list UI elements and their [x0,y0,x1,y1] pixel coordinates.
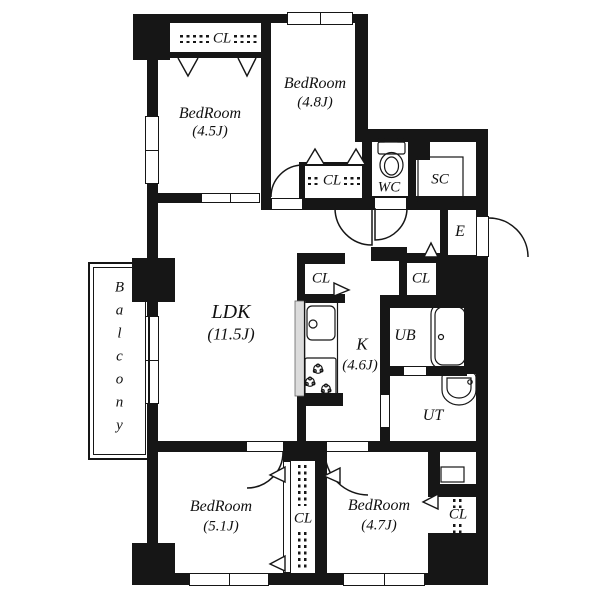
label-closet-bottom-center: CL [294,512,312,527]
label-bedroom-top-left-size: (4.5J) [192,125,227,140]
folding-door-mark [306,149,324,164]
stove-icon [305,358,336,398]
label-entrance: E [455,224,465,240]
kitchen-counter-icon [295,301,338,397]
entrance-step-mark [424,243,438,257]
door-swing-mark [423,494,438,509]
door-arc-entrance [489,218,528,257]
label-ldk-name: LDK [212,302,251,322]
label-ldk-size: (11.5J) [207,326,254,343]
bathtub-icon [431,303,469,369]
label-closet-bedroom48: CL [323,174,341,189]
label-kitchen-size: (4.6J) [342,359,377,374]
washer-pan-icon [441,467,464,482]
door-arc-bedroom48 [271,165,303,197]
label-bedroom-bottom-left-name: BedRoom [190,499,252,515]
toilet-icon [378,139,405,178]
door-arc-hall-ldk [335,208,372,245]
label-bedroom-top-left-name: BedRoom [179,106,241,122]
label-unit-bath: UB [394,328,415,344]
label-bedroom-top-mid-name: BedRoom [284,76,346,92]
washbasin-icon [442,373,476,405]
label-wc: WC [378,181,401,196]
label-bedroom-top-mid-size: (4.8J) [297,96,332,111]
door-swing-mark [270,556,285,571]
label-bedroom-bottom-right-size: (4.7J) [361,519,396,534]
floor-plan: CL BedRoom (4.5J) BedRoom (4.8J) CL WC S… [0,0,600,600]
folding-door-mark [178,58,198,76]
label-balcony: Balcony [111,280,128,441]
label-closet-bottom-right: CL [449,508,467,523]
label-bedroom-bottom-right-name: BedRoom [348,498,410,514]
label-kitchen-name: K [356,336,367,353]
label-shoe-closet: SC [431,173,449,188]
label-closet-top: CL [213,32,231,47]
door-swing-mark [270,467,285,482]
label-utility: UT [423,408,443,424]
folding-door-mark [238,58,256,76]
door-arc-wc [375,208,407,240]
label-bedroom-bottom-left-size: (5.1J) [203,520,238,535]
door-arc-bedroom51 [247,452,283,488]
label-closet-hall: CL [412,272,430,287]
door-swing-mark [334,283,349,296]
door-swing-mark [324,468,340,483]
label-closet-kitchen: CL [312,272,330,287]
folding-door-mark [347,149,365,164]
